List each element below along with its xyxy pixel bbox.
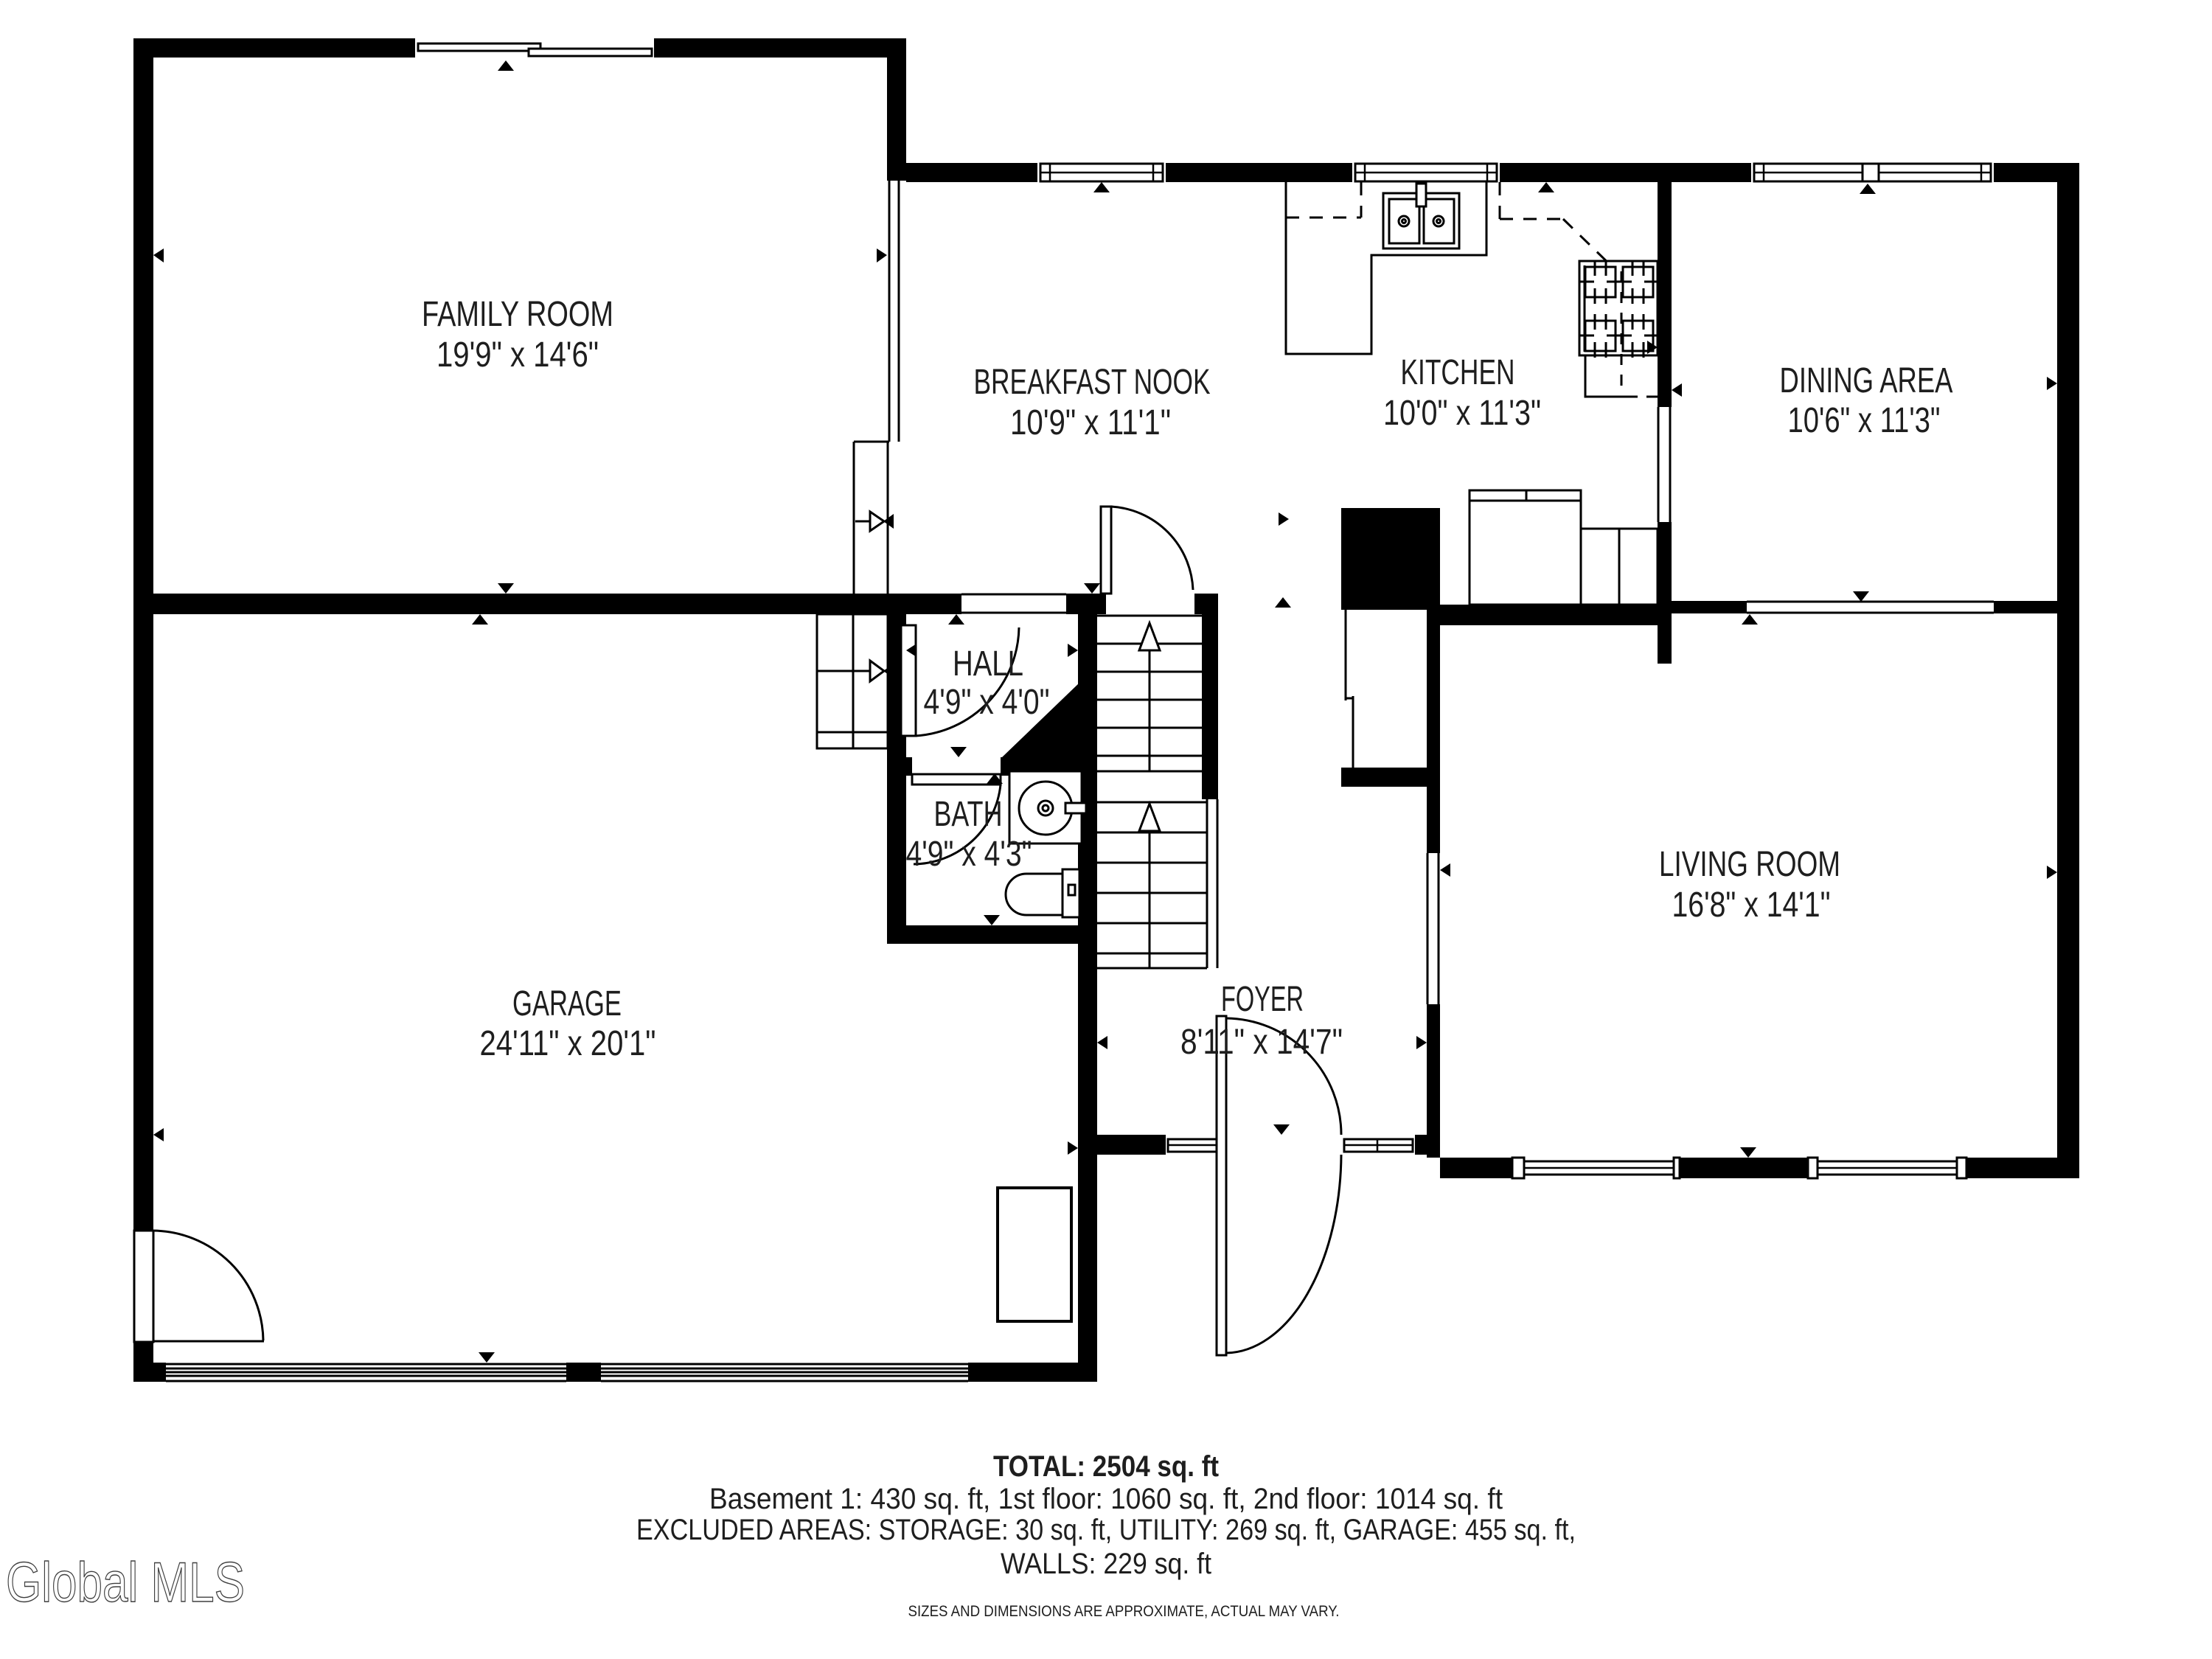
svg-text:BREAKFAST NOOK: BREAKFAST NOOK <box>974 363 1211 402</box>
svg-text:10'6" x 11'3": 10'6" x 11'3" <box>1788 401 1941 440</box>
svg-text:WALLS: 229 sq. ft: WALLS: 229 sq. ft <box>1001 1548 1211 1580</box>
svg-text:19'9" x 14'6": 19'9" x 14'6" <box>437 335 599 375</box>
svg-text:SIZES AND DIMENSIONS ARE APPRO: SIZES AND DIMENSIONS ARE APPROXIMATE, AC… <box>908 1603 1340 1620</box>
svg-text:Global MLS: Global MLS <box>6 1551 245 1614</box>
svg-text:FAMILY ROOM: FAMILY ROOM <box>422 295 613 334</box>
svg-text:HALL: HALL <box>953 644 1023 684</box>
svg-text:KITCHEN: KITCHEN <box>1401 353 1515 392</box>
svg-text:EXCLUDED AREAS: STORAGE: 30 sq: EXCLUDED AREAS: STORAGE: 30 sq. ft, UTIL… <box>636 1514 1576 1546</box>
svg-text:10'0" x 11'3": 10'0" x 11'3" <box>1383 394 1541 433</box>
svg-text:FOYER: FOYER <box>1221 980 1304 1019</box>
svg-text:8'11" x 14'7": 8'11" x 14'7" <box>1180 1023 1343 1062</box>
svg-text:DINING AREA: DINING AREA <box>1780 361 1953 400</box>
svg-text:24'11" x 20'1": 24'11" x 20'1" <box>480 1024 656 1063</box>
svg-text:Basement 1: 430 sq. ft, 1st fl: Basement 1: 430 sq. ft, 1st floor: 1060 … <box>709 1483 1503 1515</box>
svg-text:BATH: BATH <box>934 795 1003 834</box>
svg-text:4'9" x 4'3": 4'9" x 4'3" <box>906 835 1032 874</box>
svg-text:10'9" x 11'1": 10'9" x 11'1" <box>1010 403 1171 442</box>
svg-text:16'8" x 14'1": 16'8" x 14'1" <box>1672 886 1831 925</box>
svg-text:LIVING ROOM: LIVING ROOM <box>1659 845 1840 884</box>
svg-text:GARAGE: GARAGE <box>512 984 622 1023</box>
svg-text:TOTAL: 2504 sq. ft: TOTAL: 2504 sq. ft <box>993 1450 1219 1483</box>
svg-text:4'9" x 4'0": 4'9" x 4'0" <box>924 683 1050 722</box>
